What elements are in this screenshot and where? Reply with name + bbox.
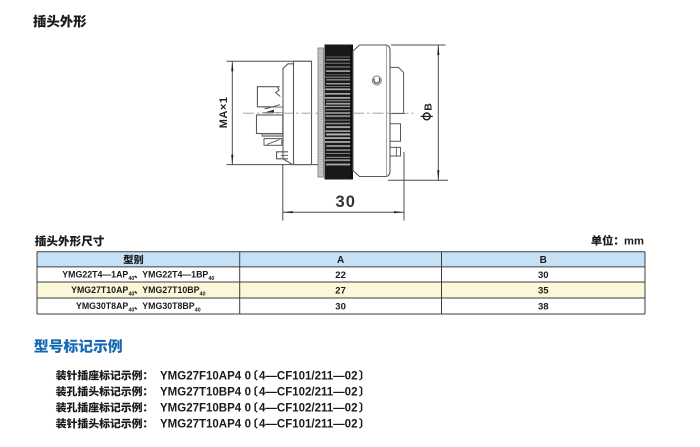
svg-text:40: 40 [195,307,201,313]
svg-text:YMG27T10BP: YMG27T10BP [142,285,199,295]
svg-text:YMG27T10BP4: YMG27T10BP4 [160,386,242,398]
svg-text:22: 22 [335,270,346,281]
svg-text:0: 0 [245,386,251,398]
svg-text:38: 38 [538,301,549,312]
svg-text:0: 0 [245,402,251,414]
svg-text:MA×1: MA×1 [218,97,230,129]
svg-text:A: A [337,255,344,266]
svg-text:YMG27F10BP4: YMG27F10BP4 [160,402,242,414]
svg-text:4—CF102/211—02: 4—CF102/211—02 [259,402,357,414]
svg-text:YMG22T4—1BP: YMG22T4—1BP [142,270,208,280]
svg-text:YMG27T10AP4: YMG27T10AP4 [160,418,242,430]
svg-text:4—CF101/211—02: 4—CF101/211—02 [259,370,357,382]
svg-text:30: 30 [336,193,356,211]
svg-text:YMG30T8BP: YMG30T8BP [142,301,194,311]
svg-text:mm: mm [624,236,644,248]
svg-text:B: B [540,255,547,266]
svg-text:0: 0 [245,418,251,430]
svg-text:35: 35 [538,285,549,296]
svg-text:YMG27T10AP: YMG27T10AP [71,285,128,295]
svg-text:27: 27 [335,285,346,296]
svg-text:40: 40 [128,276,134,282]
svg-text:40: 40 [208,276,214,282]
svg-text:40: 40 [200,291,206,297]
svg-text:40: 40 [128,307,134,313]
svg-text:YMG30T8AP: YMG30T8AP [76,301,128,311]
svg-text:40: 40 [128,291,134,297]
svg-text:0: 0 [245,370,251,382]
svg-text:4—CF102/211—02: 4—CF102/211—02 [259,386,357,398]
svg-text:30: 30 [335,301,346,312]
svg-text:30: 30 [538,270,549,281]
svg-text:4—CF101/211—02: 4—CF101/211—02 [259,418,357,430]
svg-text:YMG27F10AP4: YMG27F10AP4 [160,370,242,382]
svg-text:B: B [423,103,435,111]
svg-text:YMG22T4—1AP: YMG22T4—1AP [62,270,128,280]
